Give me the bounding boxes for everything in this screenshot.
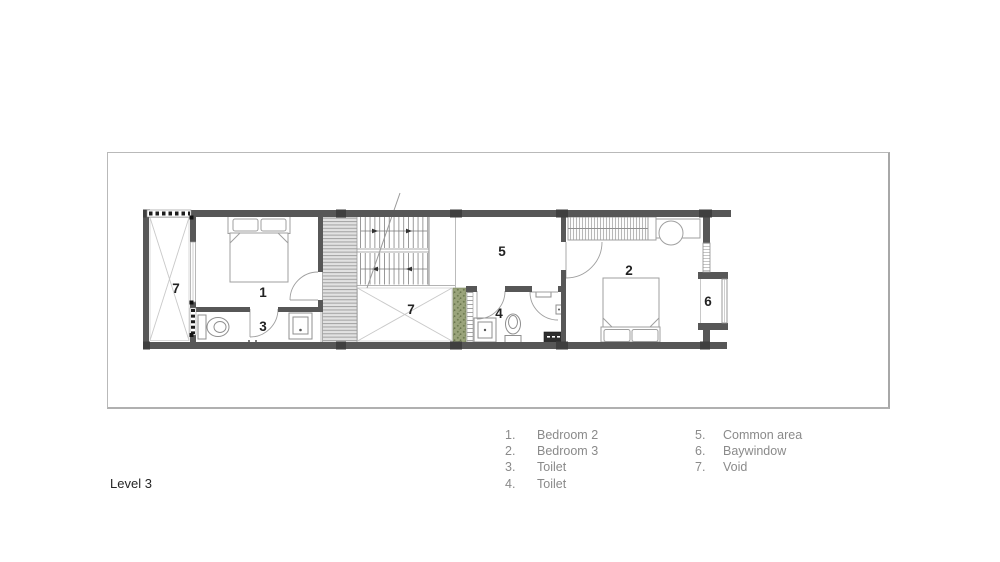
room-label-common-area: 5	[498, 244, 506, 259]
wardrobe	[568, 217, 656, 240]
room-label-void-mid: 7	[407, 302, 415, 317]
slide-canvas: 7 1 3 7 5 4 2 6 1. Bedroom 2 2. Bedroom …	[0, 0, 1000, 562]
legend-item-label: Common area	[723, 427, 802, 443]
level-title: Level 3	[110, 476, 152, 491]
legend-item-label: Baywindow	[723, 443, 786, 459]
staircase	[357, 193, 455, 288]
legend-item-number: 1.	[505, 427, 537, 443]
legend-item: 6. Baywindow	[695, 443, 802, 459]
legend-item-label: Void	[723, 459, 747, 475]
room-label-bedroom-2: 1	[259, 285, 267, 300]
legend-item-number: 6.	[695, 443, 723, 459]
void-mid-area	[358, 288, 453, 341]
legend-item: 5. Common area	[695, 427, 802, 443]
room-label-void-left: 7	[172, 281, 180, 296]
room-label-baywindow: 6	[704, 294, 712, 309]
legend-column-1: 1. Bedroom 2 2. Bedroom 3 3. Toilet 4. T…	[505, 427, 598, 492]
legend-item-number: 2.	[505, 443, 537, 459]
room-label-toilet-3: 3	[259, 319, 267, 334]
legend-column-2: 5. Common area 6. Baywindow 7. Void	[695, 427, 802, 476]
legend-item: 4. Toilet	[505, 476, 598, 492]
legend-item-number: 5.	[695, 427, 723, 443]
toilet-3-fixtures	[198, 313, 312, 342]
bed-bedroom-3	[601, 278, 660, 342]
legend-item-label: Bedroom 3	[537, 443, 598, 459]
legend-item-number: 4.	[505, 476, 537, 492]
bed-bedroom-2	[228, 217, 290, 283]
legend-item: 3. Toilet	[505, 459, 598, 475]
room-label-toilet-4: 4	[495, 306, 503, 321]
legend-item: 7. Void	[695, 459, 802, 475]
legend-item: 1. Bedroom 2	[505, 427, 598, 443]
desk-and-chair	[656, 219, 700, 245]
legend-item-number: 3.	[505, 459, 537, 475]
legend-item-number: 7.	[695, 459, 723, 475]
corridor-bridge	[323, 217, 358, 342]
legend-item: 2. Bedroom 3	[505, 443, 598, 459]
room-label-bedroom-3: 2	[625, 263, 633, 278]
legend-item-label: Toilet	[537, 476, 566, 492]
planter-strip	[453, 288, 473, 342]
legend-item-label: Toilet	[537, 459, 566, 475]
void-left-area	[150, 218, 189, 341]
legend-item-label: Bedroom 2	[537, 427, 598, 443]
